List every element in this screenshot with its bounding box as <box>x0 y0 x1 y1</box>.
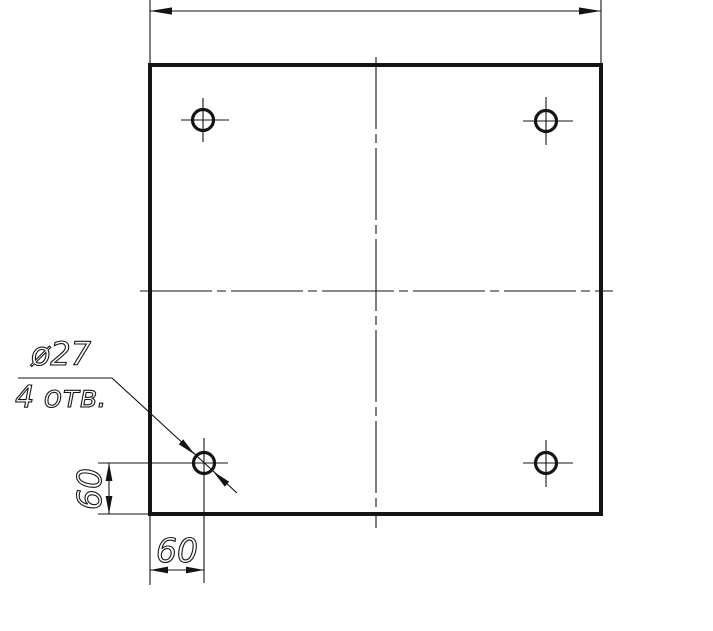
hole-center-marks <box>98 97 573 583</box>
arrowhead-lower <box>213 471 229 486</box>
arrowhead-right <box>579 7 601 14</box>
dimension-top-width <box>150 0 601 65</box>
plate-drawing: ø27 4 отв. 60 60 <box>0 0 713 631</box>
dim-vertical-label: 60 <box>70 468 109 510</box>
hole-diameter-label: ø27 <box>30 335 92 373</box>
hole-count-label: 4 отв. <box>15 380 107 415</box>
dimension-vertical-60: 60 <box>70 463 150 514</box>
dimension-horizontal-60: 60 <box>150 514 204 585</box>
arrowhead-upper <box>179 439 195 454</box>
arrowhead-left <box>150 7 172 14</box>
drawing-canvas: ø27 4 отв. 60 60 <box>0 0 713 631</box>
dim-horizontal-label: 60 <box>156 531 198 570</box>
